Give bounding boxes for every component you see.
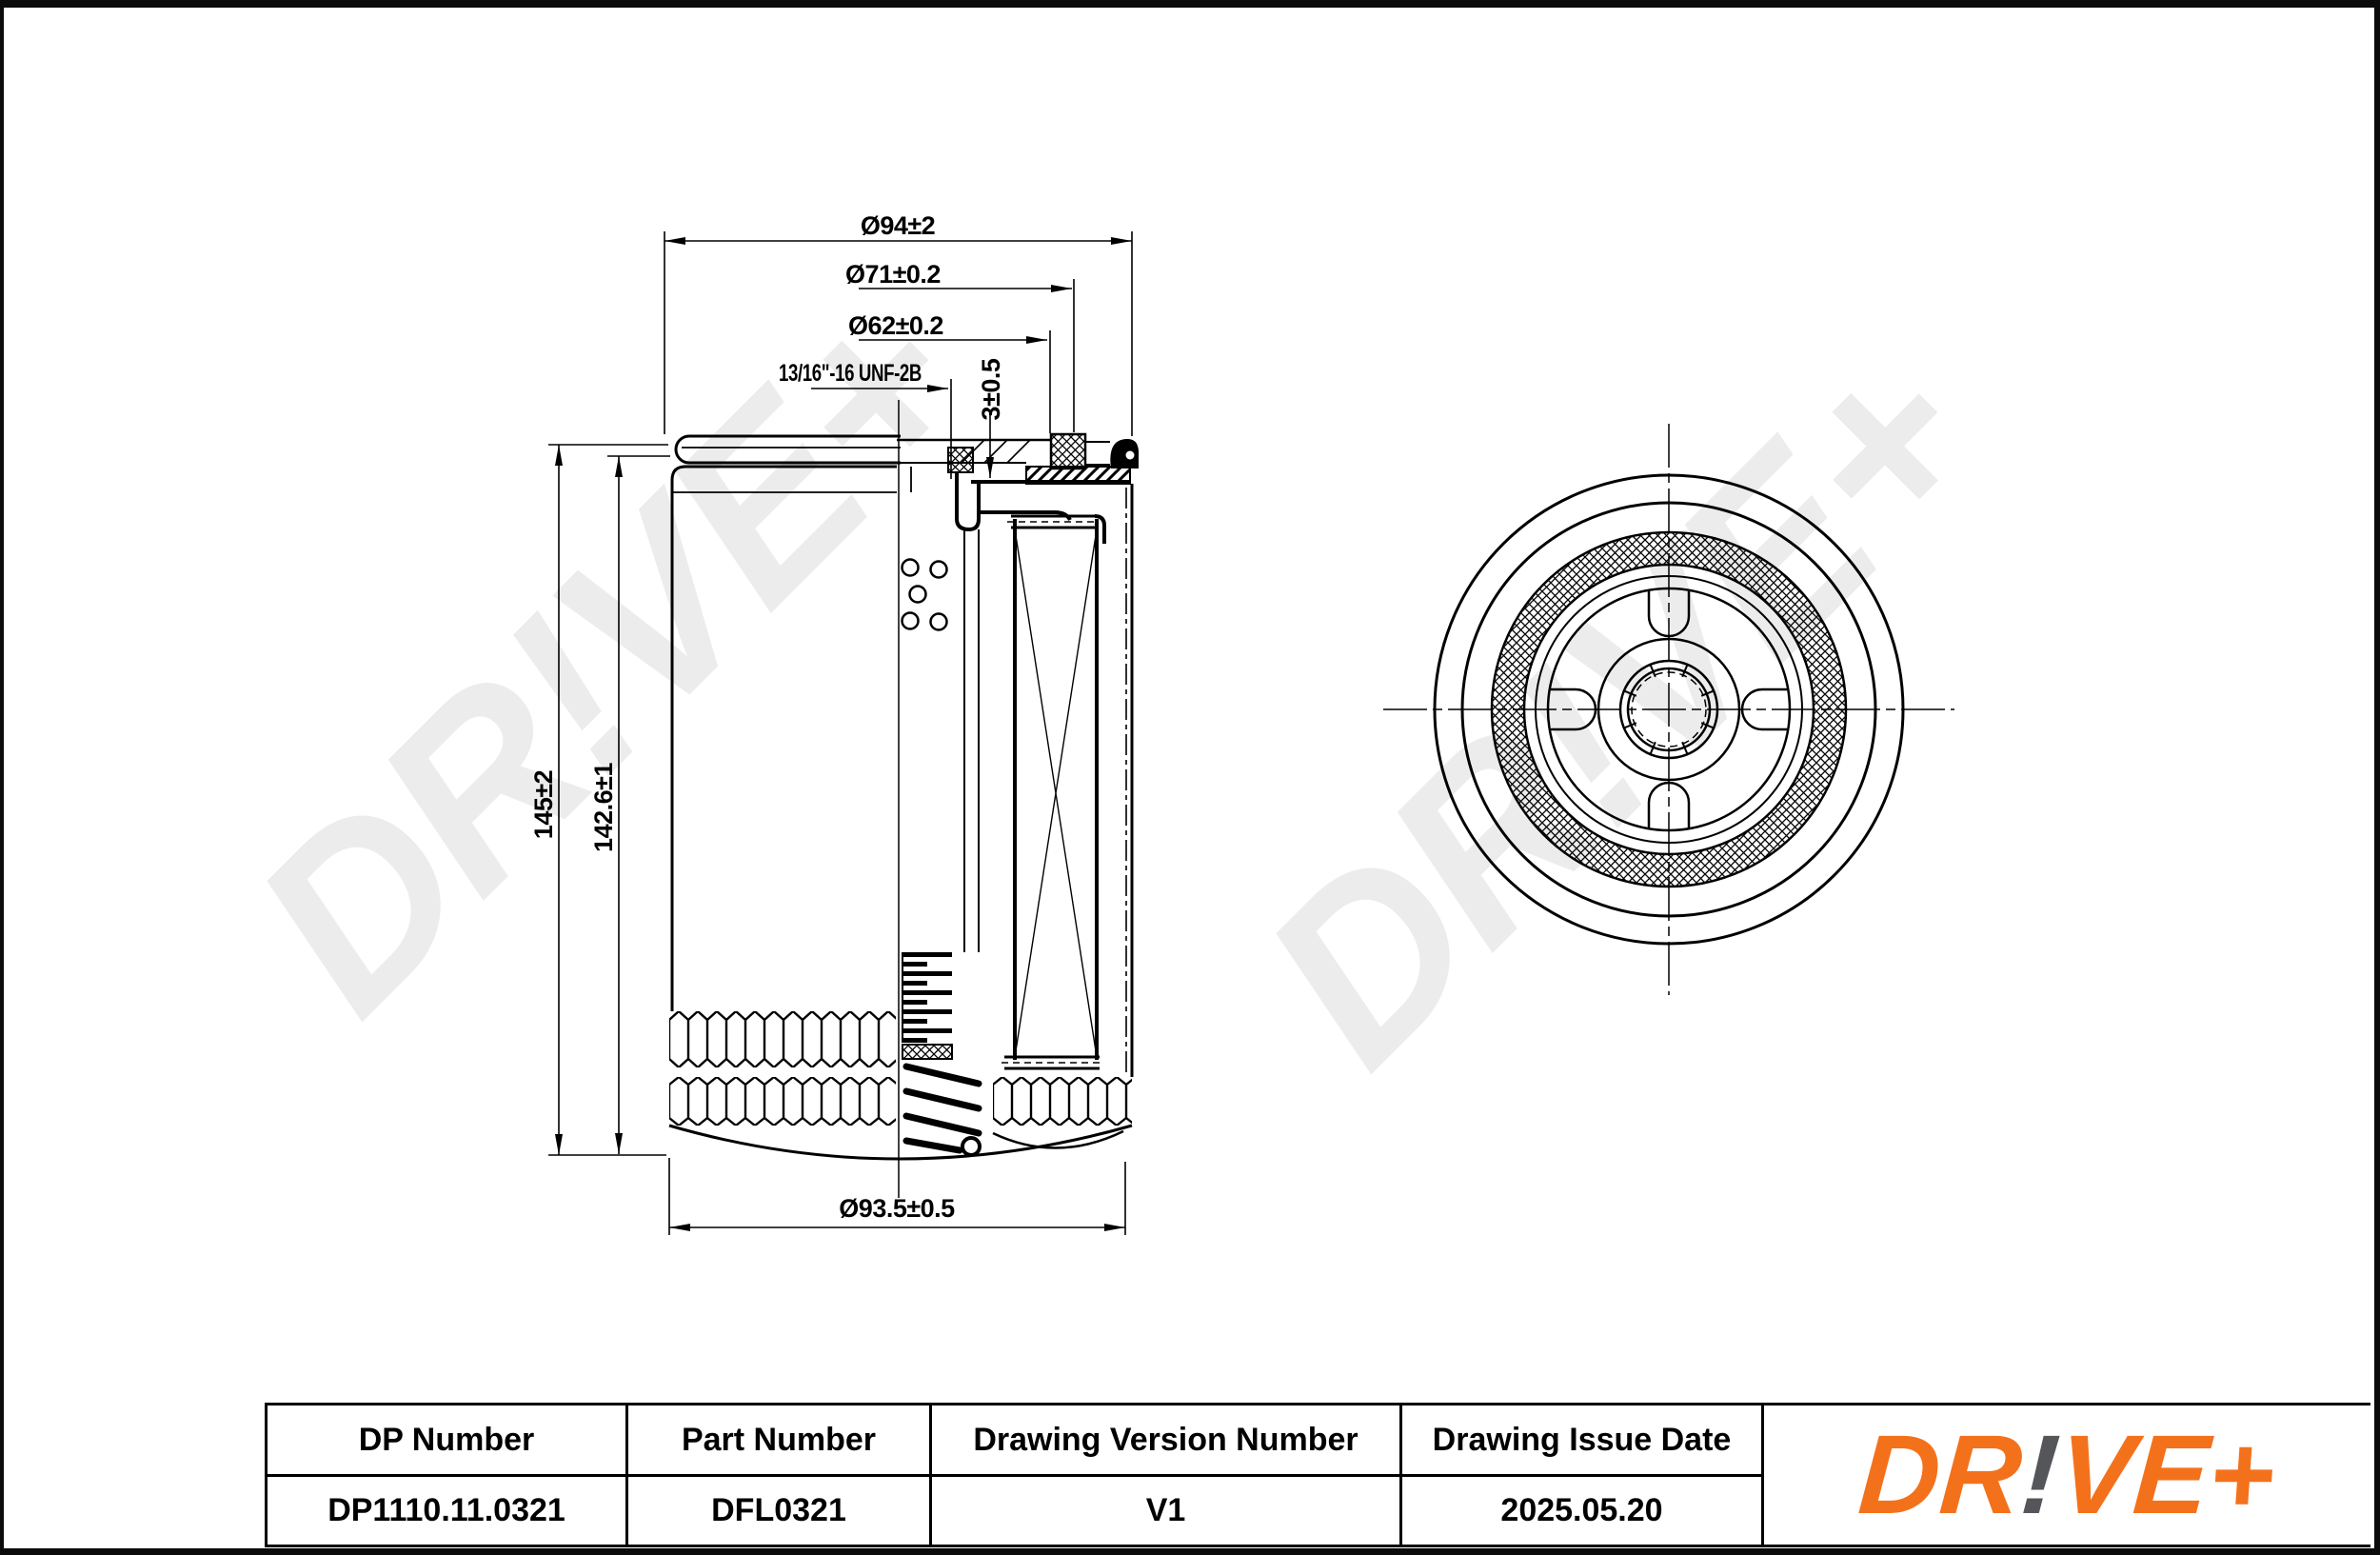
label-d935: Ø93.5±0.5	[839, 1194, 955, 1223]
drawing-sheet: DR!VE+ DR!VE+	[0, 0, 2380, 1555]
spring-end	[962, 1138, 980, 1155]
label-height-body: 142.6±1	[589, 763, 618, 852]
label-height-overall: 145±2	[529, 770, 558, 839]
sealing-gasket-section	[1051, 434, 1085, 468]
title-header-drawing-version: Drawing Version Number	[932, 1405, 1402, 1477]
knurl-band-lower-right	[993, 1077, 1132, 1126]
label-d62: Ø62±0.2	[848, 311, 943, 340]
title-header-issue-date: Drawing Issue Date	[1402, 1405, 1764, 1477]
brand-logo-cell: DR!VE+	[1764, 1405, 2370, 1545]
knurl-band-upper	[669, 1011, 896, 1067]
label-d94: Ø94±2	[861, 211, 935, 240]
inner-seal-section	[948, 448, 973, 472]
logo-part-ve-plus: VE+	[2055, 1412, 2280, 1538]
gasket-seat-lines	[1085, 442, 1110, 465]
title-block: DP Number Part Number Drawing Version Nu…	[265, 1403, 2370, 1547]
title-value-issue-date: 2025.05.20	[1402, 1477, 1764, 1545]
label-gasket-height: 3±0.5	[977, 358, 1005, 420]
lid-flange-outline	[676, 436, 901, 463]
center-tube-walls	[964, 529, 979, 952]
drive-plus-logo: DR!VE+	[1855, 1419, 2278, 1531]
label-thread: 13/16"-16 UNF-2B	[779, 360, 922, 387]
bottom-thread-rack	[902, 952, 952, 1043]
title-value-drawing-version: V1	[932, 1477, 1402, 1545]
tube-perforation-holes	[902, 560, 947, 630]
logo-part-dr: DR	[1855, 1412, 2027, 1538]
can-body-left-wall	[672, 467, 897, 1011]
top-view-centerlines	[1383, 424, 1954, 995]
title-header-dp-number: DP Number	[268, 1405, 628, 1477]
can-bottom-dome	[669, 1126, 1132, 1159]
knurl-band-lower-left	[669, 1077, 896, 1126]
side-section-view	[669, 400, 1139, 1198]
technical-drawing-canvas: Ø94±2 Ø71±0.2 Ø62±0.2 13/16"-16 UNF-2B 3…	[0, 0, 2380, 1555]
title-header-part-number: Part Number	[628, 1405, 932, 1477]
top-end-view	[1383, 424, 1954, 995]
element-cross	[1015, 529, 1097, 1057]
seam-roll	[1110, 439, 1139, 468]
title-value-part-number: DFL0321	[628, 1477, 932, 1545]
seam-detail-dot	[1126, 451, 1135, 460]
bottom-seal-hatch	[902, 1045, 952, 1059]
label-d71: Ø71±0.2	[845, 260, 941, 289]
title-value-dp-number: DP1110.11.0321	[268, 1477, 628, 1545]
